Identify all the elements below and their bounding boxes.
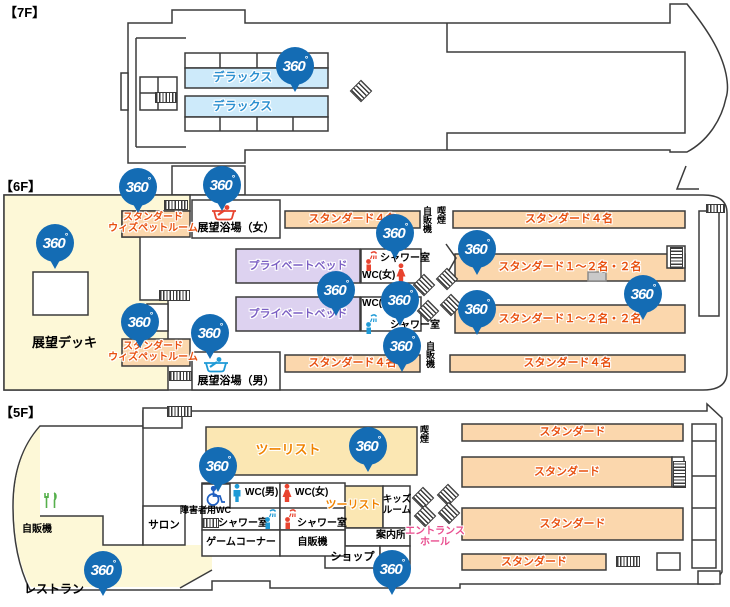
stairs-icon <box>673 461 686 488</box>
badge-360-f5-accessible-wc[interactable]: 360° <box>199 447 237 485</box>
f5-salon-label: サロン <box>143 506 185 545</box>
f7-bow-fragment <box>677 166 699 189</box>
shower-icon <box>364 250 378 272</box>
stairs-icon <box>155 92 177 103</box>
f5-std-label-2: スタンダード <box>462 457 672 487</box>
badge-360-f6-bath-women[interactable]: 360° <box>203 166 241 204</box>
f5-shop-label: ショップ <box>325 546 380 568</box>
f5-std-label-3: スタンダード <box>462 508 683 540</box>
f7-floor-label: 【7F】 <box>4 6 45 21</box>
stairs-icon <box>164 200 188 210</box>
f5-tourist-label-2: ツーリスト <box>323 499 383 512</box>
f6-floor-label: 【6F】 <box>0 180 41 195</box>
f5-smoking-label: 喫煙 <box>419 425 428 443</box>
badge-360-f6-shower-bottom[interactable]: 360° <box>383 327 421 365</box>
f5-info-desk-label: 案内所 <box>376 530 406 542</box>
f6-bath-women-label: 展望浴場（女） <box>192 222 280 235</box>
stairs-icon <box>167 406 192 417</box>
man-icon <box>232 483 242 503</box>
f5-restaurant-label: レストラン <box>24 583 84 597</box>
f6-pet-room-top-line2: ウィズペットルーム <box>107 223 199 235</box>
shower-icon <box>263 508 277 530</box>
f5-shower-left-label: シャワー室 <box>218 518 268 530</box>
woman-icon <box>396 263 406 282</box>
badge-360-f5-shop[interactable]: 360° <box>373 550 411 588</box>
shower-icon <box>364 313 378 335</box>
f6-vending-top-label: 自販機 <box>422 206 431 233</box>
f5-kids-room-line2: ルーム <box>383 506 411 517</box>
woman-icon <box>282 483 292 503</box>
badge-360-f6-std12-right[interactable]: 360° <box>624 275 662 313</box>
f5-entrance-line1: エントランス <box>408 526 462 537</box>
f5-entrance-line2: ホール <box>408 537 462 548</box>
stairs-icon <box>616 556 640 567</box>
f5-vending-left-label: 自販機 <box>22 524 52 536</box>
f5-game-corner-label: ゲームコーナー <box>202 530 280 556</box>
stairs-icon <box>202 518 219 528</box>
f6-std4-label-tr: スタンダード４名 <box>453 211 685 228</box>
f6-pet-room-bottom-line2: ウィズペットルーム <box>107 352 199 364</box>
f6-std4-label-br: スタンダード４名 <box>450 355 685 372</box>
stairs-icon <box>169 371 192 381</box>
f6-deck-label: 展望デッキ <box>32 336 97 351</box>
stairs-icon <box>706 204 725 213</box>
f5-wc-women-label: WC(女) <box>295 487 328 499</box>
badge-360-f6-pet-bottom[interactable]: 360° <box>121 303 159 341</box>
badge-360-f6-std12-top[interactable]: 360° <box>458 230 496 268</box>
f6-smoking-label: 喫煙 <box>436 206 445 224</box>
badge-360-f6-deck[interactable]: 360° <box>36 224 74 262</box>
badge-360-f6-std12-bottom[interactable]: 360° <box>458 290 496 328</box>
f6-bath-men-label: 展望浴場（男） <box>192 375 280 388</box>
shower-icon <box>283 508 297 530</box>
badge-360-f6-bath-men[interactable]: 360° <box>191 314 229 352</box>
f5-std-label-4: スタンダード <box>462 554 606 570</box>
f6-vending-bottom-label: 自販機 <box>425 341 434 368</box>
badge-360-f5-restaurant[interactable]: 360° <box>84 551 122 589</box>
ferry-deck-plan: 【7F】 【6F】 【5F】 デラックス デラックス 展望デッキ スタンダード … <box>0 0 730 607</box>
badge-360-f5-tourist[interactable]: 360° <box>349 427 387 465</box>
f5-shower-right-label: シャワー室 <box>297 518 347 530</box>
f5-wc-men-label: WC(男) <box>245 487 278 499</box>
badge-360-f7-deluxe[interactable]: 360° <box>276 47 314 85</box>
f6-deck-opening <box>33 272 88 315</box>
f5-std-label-1: スタンダード <box>462 424 683 441</box>
restaurant-icon <box>42 492 59 509</box>
f5-floor-label: 【5F】 <box>0 406 41 421</box>
badge-360-f6-wc[interactable]: 360° <box>381 281 419 319</box>
badge-360-f6-shower-top[interactable]: 360° <box>376 214 414 252</box>
stairs-icon <box>159 290 190 301</box>
f7-deluxe-label-2: デラックス <box>190 99 295 115</box>
badge-360-f6-private-bed[interactable]: 360° <box>317 271 355 309</box>
f5-tourist-label-1: ツーリスト <box>238 443 338 458</box>
badge-360-f6-pet-top[interactable]: 360° <box>119 168 157 206</box>
